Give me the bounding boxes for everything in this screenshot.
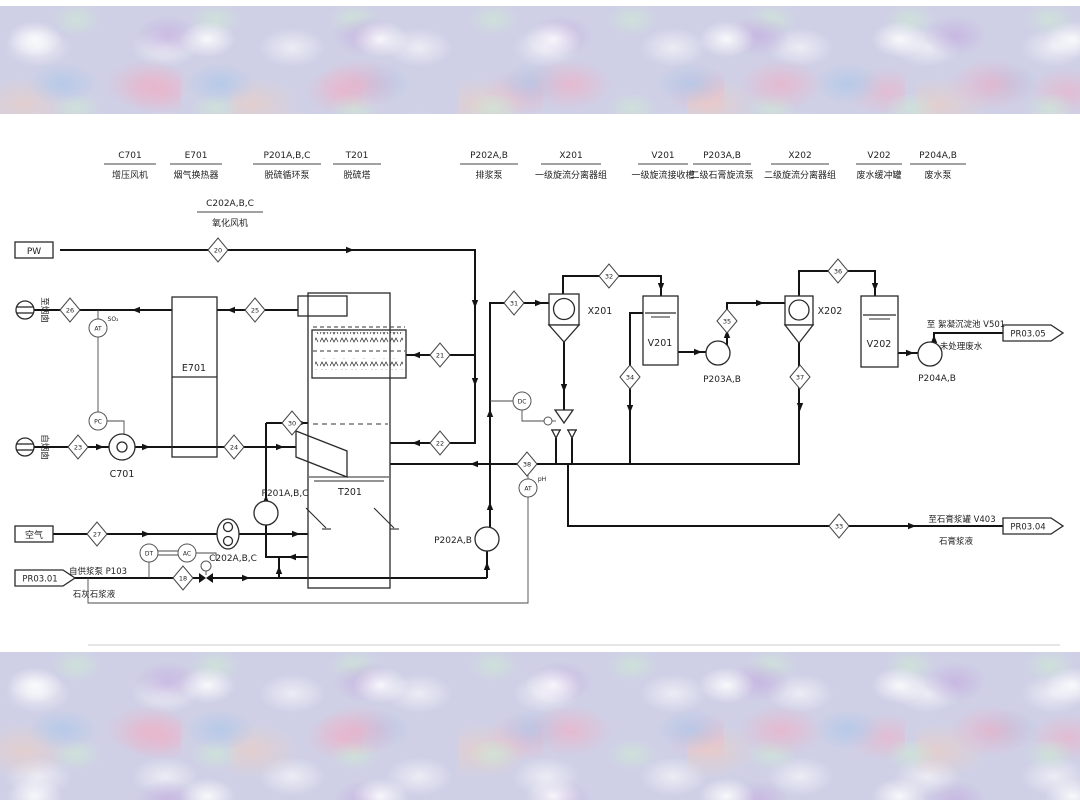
svg-text:一级旋流接收槽: 一级旋流接收槽 bbox=[631, 169, 694, 181]
flow-tag-32: 32 bbox=[599, 264, 619, 288]
svg-text:X202: X202 bbox=[788, 151, 811, 161]
flow-tag-34: 34 bbox=[620, 365, 640, 389]
splitter-valve-icon bbox=[544, 410, 577, 438]
wastewater-label: 未处理废水 bbox=[940, 341, 983, 352]
svg-text:30: 30 bbox=[288, 420, 296, 428]
pressure-controller-icon: PC bbox=[89, 412, 107, 430]
p201-label: P201A,B,C bbox=[262, 489, 309, 499]
flow-tag-35: 35 bbox=[717, 309, 737, 333]
svg-text:氧化风机: 氧化风机 bbox=[212, 217, 248, 229]
legend-item-c202: C202A,B,C 氧化风机 bbox=[197, 199, 263, 229]
from-stack-label: 自烟囱 bbox=[39, 434, 50, 460]
flow-tag-36: 36 bbox=[828, 259, 848, 283]
svg-text:烟气换热器: 烟气换热器 bbox=[173, 169, 218, 181]
svg-text:pH: pH bbox=[538, 476, 546, 483]
tower-label: T201 bbox=[337, 487, 362, 498]
equipment-legend: C701 增压风机 E701 烟气换热器 P201A,B,C 脱硫循环泵 T20… bbox=[104, 151, 966, 229]
connector-pr03-04: PR03.04 bbox=[1003, 518, 1063, 534]
svg-text:35: 35 bbox=[723, 318, 731, 326]
stack-symbol-in bbox=[16, 438, 34, 456]
flow-tag-37: 37 bbox=[790, 365, 810, 389]
flow-tag-30: 30 bbox=[282, 411, 302, 435]
svg-text:C202A,B,C: C202A,B,C bbox=[206, 199, 254, 209]
svg-text:38: 38 bbox=[523, 461, 531, 469]
flow-tag-25: 25 bbox=[245, 298, 265, 322]
svg-text:32: 32 bbox=[605, 273, 613, 281]
svg-text:AT: AT bbox=[524, 486, 532, 493]
density-transmitter-icon: DT bbox=[140, 544, 158, 562]
analyzer-controller-icon: AC bbox=[178, 544, 196, 562]
p202-label: P202A,B bbox=[434, 536, 472, 546]
svg-text:34: 34 bbox=[626, 374, 634, 382]
svg-text:SO₂: SO₂ bbox=[108, 316, 120, 323]
p203-label: P203A,B bbox=[703, 375, 741, 385]
svg-text:二级旋流分离器组: 二级旋流分离器组 bbox=[764, 169, 836, 181]
svg-text:T201: T201 bbox=[345, 151, 369, 161]
svg-text:37: 37 bbox=[796, 374, 804, 382]
x201-label: X201 bbox=[588, 306, 613, 317]
pw-source: PW bbox=[15, 242, 53, 258]
flow-tag-27: 27 bbox=[87, 522, 107, 546]
svg-text:20: 20 bbox=[214, 247, 222, 255]
connector-pr03-01: PR03.01 bbox=[15, 570, 75, 586]
svg-text:21: 21 bbox=[436, 352, 444, 360]
blower-c202: C202A,B,C bbox=[209, 519, 257, 564]
svg-text:脱硫塔: 脱硫塔 bbox=[343, 169, 370, 181]
density-controller-icon: DC bbox=[513, 392, 531, 410]
flow-tag-31: 31 bbox=[504, 291, 524, 315]
connector-pr03-05: PR03.05 bbox=[1003, 325, 1063, 341]
svg-text:V202: V202 bbox=[867, 151, 890, 161]
svg-text:18: 18 bbox=[179, 575, 187, 583]
limestone-source-label: 自供浆泵 P103 bbox=[69, 566, 127, 577]
flow-tag-21: 21 bbox=[430, 343, 450, 367]
svg-text:一级旋流分离器组: 一级旋流分离器组 bbox=[535, 169, 607, 181]
legend-item-p202: P202A,B 排浆泵 bbox=[460, 151, 518, 181]
signal-lines bbox=[88, 310, 556, 603]
limestone-label: 石灰石浆液 bbox=[73, 589, 116, 600]
tank-v202: V202 bbox=[861, 296, 898, 367]
svg-text:PR03.05: PR03.05 bbox=[1010, 330, 1045, 340]
legend-item-p204: P204A,B 废水泵 bbox=[910, 151, 966, 181]
ph-analyzer-icon: AT pH bbox=[519, 476, 546, 497]
heat-exchanger-e701: E701 bbox=[172, 297, 217, 457]
legend-item-e701: E701 烟气换热器 bbox=[170, 151, 222, 181]
cyclone-x201: X201 bbox=[549, 294, 612, 342]
svg-text:P203A,B: P203A,B bbox=[703, 151, 741, 161]
stack-symbol-out bbox=[16, 301, 34, 319]
flow-tag-24: 24 bbox=[224, 435, 244, 459]
svg-text:24: 24 bbox=[230, 444, 238, 452]
flow-tag-18: 18 bbox=[173, 566, 193, 590]
tower-t201: T201 bbox=[296, 293, 406, 588]
svg-text:AC: AC bbox=[183, 551, 191, 558]
legend-item-p201: P201A,B,C 脱硫循环泵 bbox=[253, 151, 321, 181]
legend-item-p203: P203A,B 二级石膏旋流泵 bbox=[690, 151, 753, 181]
svg-text:PW: PW bbox=[27, 247, 41, 257]
svg-text:空气: 空气 bbox=[25, 529, 43, 541]
svg-text:25: 25 bbox=[251, 307, 259, 315]
svg-text:二级石膏旋流泵: 二级石膏旋流泵 bbox=[690, 169, 753, 181]
svg-text:X201: X201 bbox=[559, 151, 582, 161]
svg-text:22: 22 bbox=[436, 440, 444, 448]
flow-tag-20: 20 bbox=[208, 238, 228, 262]
svg-text:P201A,B,C: P201A,B,C bbox=[264, 151, 311, 161]
svg-text:36: 36 bbox=[834, 268, 842, 276]
svg-text:增压风机: 增压风机 bbox=[112, 169, 148, 181]
flow-tag-33: 33 bbox=[829, 514, 849, 538]
svg-text:26: 26 bbox=[66, 307, 74, 315]
svg-text:排浆泵: 排浆泵 bbox=[475, 169, 502, 181]
svg-text:PR03.01: PR03.01 bbox=[22, 575, 57, 585]
svg-text:PR03.04: PR03.04 bbox=[1010, 523, 1045, 533]
tank-v201: V201 bbox=[643, 296, 678, 365]
svg-text:P202A,B: P202A,B bbox=[470, 151, 508, 161]
svg-text:V201: V201 bbox=[651, 151, 674, 161]
svg-text:AT: AT bbox=[94, 326, 102, 333]
svg-text:废水泵: 废水泵 bbox=[924, 169, 951, 181]
process-lines bbox=[34, 250, 1060, 645]
air-source: 空气 bbox=[15, 526, 53, 542]
svg-text:33: 33 bbox=[835, 523, 843, 531]
svg-text:废水缓冲罐: 废水缓冲罐 bbox=[856, 169, 901, 181]
svg-text:C701: C701 bbox=[118, 151, 141, 161]
svg-text:31: 31 bbox=[510, 300, 518, 308]
so2-analyzer-icon: AT SO₂ bbox=[89, 316, 119, 337]
svg-text:PC: PC bbox=[94, 419, 102, 426]
flow-tag-23: 23 bbox=[68, 435, 88, 459]
svg-text:E701: E701 bbox=[185, 151, 208, 161]
to-stack-label: 至烟囱 bbox=[39, 297, 50, 323]
gypsum-dest-label: 至石膏浆罐 V403 bbox=[928, 514, 995, 525]
svg-text:DT: DT bbox=[145, 551, 154, 558]
svg-text:DC: DC bbox=[518, 399, 527, 406]
flow-tag-38: 38 bbox=[517, 452, 537, 476]
e701-label: E701 bbox=[182, 363, 206, 374]
agitator-icon bbox=[306, 508, 399, 529]
gypsum-label: 石膏浆液 bbox=[939, 536, 974, 547]
x202-label: X202 bbox=[818, 306, 843, 317]
svg-text:27: 27 bbox=[93, 531, 101, 539]
svg-text:P204A,B: P204A,B bbox=[919, 151, 957, 161]
v201-label: V201 bbox=[648, 338, 673, 349]
pump-p203: P203A,B bbox=[703, 341, 741, 385]
c202-label: C202A,B,C bbox=[209, 554, 257, 564]
pump-p201: P201A,B,C bbox=[254, 489, 308, 525]
legend-item-v201: V201 一级旋流接收槽 bbox=[631, 151, 694, 181]
equipment: T201 E701 C701 C202A,B,C bbox=[16, 293, 956, 588]
legend-item-x202: X202 二级旋流分离器组 bbox=[764, 151, 836, 181]
slide: C701 增压风机 E701 烟气换热器 P201A,B,C 脱硫循环泵 T20… bbox=[0, 0, 1080, 810]
legend-item-x201: X201 一级旋流分离器组 bbox=[535, 151, 607, 181]
flow-tag-22: 22 bbox=[430, 431, 450, 455]
legend-item-c701: C701 增压风机 bbox=[104, 151, 156, 181]
legend-item-t201: T201 脱硫塔 bbox=[333, 151, 381, 181]
svg-text:23: 23 bbox=[74, 444, 82, 452]
legend-item-v202: V202 废水缓冲罐 bbox=[856, 151, 902, 181]
pump-p202: P202A,B bbox=[434, 527, 499, 551]
svg-text:脱硫循环泵: 脱硫循环泵 bbox=[264, 169, 309, 181]
process-flow-diagram: C701 增压风机 E701 烟气换热器 P201A,B,C 脱硫循环泵 T20… bbox=[0, 0, 1080, 810]
p204-label: P204A,B bbox=[918, 374, 956, 384]
v202-label: V202 bbox=[867, 339, 892, 350]
fan-c701: C701 bbox=[109, 434, 135, 480]
flow-tag-26: 26 bbox=[60, 298, 80, 322]
c701-label: C701 bbox=[110, 469, 135, 480]
wastewater-dest-label: 至 絮凝沉淀池 V501 bbox=[927, 319, 1005, 330]
control-valve-icon bbox=[199, 561, 213, 583]
cyclone-x202: X202 bbox=[785, 296, 842, 343]
